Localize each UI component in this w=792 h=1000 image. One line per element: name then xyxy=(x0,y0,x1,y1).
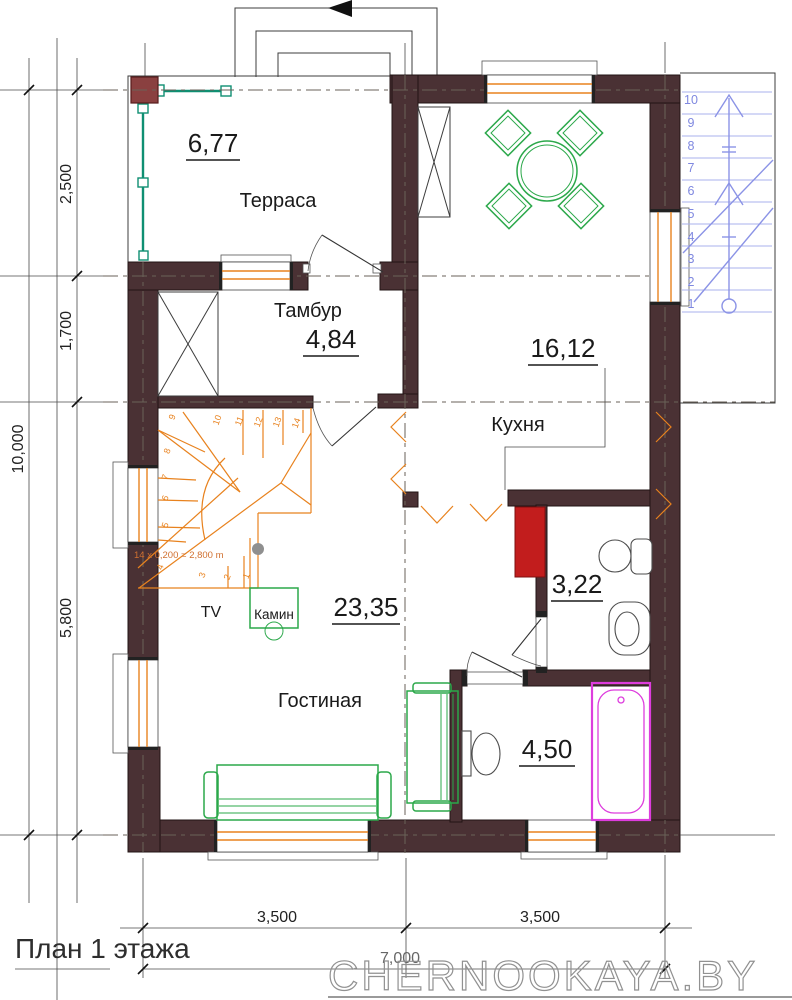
int-step-3: 3 xyxy=(197,571,208,579)
toilet xyxy=(599,539,652,574)
area-bath: 4,50 xyxy=(522,734,573,764)
dim-bottom-3500a: 3,500 xyxy=(257,909,297,926)
dim-left-1700: 1,700 xyxy=(58,311,75,351)
int-step-9: 9 xyxy=(167,413,178,421)
area-wc: 3,22 xyxy=(552,569,603,599)
dim-left-total: 10,000 xyxy=(10,424,27,473)
interior-stair: 14 х 0,200 = 2,800 m 1 2 3 4 5 6 7 8 9 1… xyxy=(134,408,311,588)
int-step-14: 14 xyxy=(290,417,303,430)
area-tambour: 4,84 xyxy=(306,324,357,354)
watermark-text: CHERNOOKAYA.BY xyxy=(328,952,758,999)
int-step-8: 8 xyxy=(162,447,173,455)
int-step-13: 13 xyxy=(271,416,284,429)
dim-left-5800: 5,800 xyxy=(58,598,75,638)
stair-formula: 14 х 0,200 = 2,800 m xyxy=(134,550,224,561)
watermark: CHERNOOKAYA.BY xyxy=(328,952,792,999)
int-step-10: 10 xyxy=(211,414,224,427)
ext-step-2: 2 xyxy=(688,275,695,289)
terrace-outline xyxy=(128,76,392,262)
closet-tambour xyxy=(158,292,218,396)
fireplace-label: Камин xyxy=(254,607,294,622)
bathtub xyxy=(592,683,650,820)
interior-walls xyxy=(158,396,650,822)
ext-step-4: 4 xyxy=(688,230,695,244)
exterior-walls xyxy=(128,75,680,852)
chimney-flue xyxy=(515,507,545,577)
int-step-2: 2 xyxy=(222,573,233,581)
area-living: 23,35 xyxy=(333,592,398,622)
dining-set xyxy=(485,110,603,228)
fridge-kitchen xyxy=(418,107,450,217)
page-title: План 1 этажа xyxy=(15,933,190,964)
ext-step-8: 8 xyxy=(688,139,695,153)
terrace-railing xyxy=(131,77,231,260)
int-step-7: 7 xyxy=(160,473,171,481)
dim-bottom-3500b: 3,500 xyxy=(520,909,560,926)
exterior-stair: 10 9 8 7 6 5 4 3 2 1 xyxy=(680,73,775,403)
bath-sink xyxy=(462,731,500,776)
int-step-5: 5 xyxy=(160,521,171,529)
ext-step-3: 3 xyxy=(688,252,695,266)
room-name-living: Гостиная xyxy=(278,690,362,712)
ext-step-5: 5 xyxy=(688,207,695,221)
tv-label: TV xyxy=(201,604,222,621)
stair-newel-post xyxy=(252,543,264,555)
ext-step-1: 1 xyxy=(688,297,695,311)
entrance-porch xyxy=(235,0,437,77)
dim-left-2500: 2,500 xyxy=(58,164,75,204)
ext-step-9: 9 xyxy=(688,116,695,130)
entrance-arrow-icon xyxy=(328,0,352,17)
room-name-tambour: Тамбур xyxy=(274,300,342,322)
room-name-kitchen: Кухня xyxy=(491,414,545,436)
int-step-6: 6 xyxy=(160,494,171,502)
ext-step-6: 6 xyxy=(688,184,695,198)
ext-step-10: 10 xyxy=(684,93,698,107)
ext-step-7: 7 xyxy=(688,161,695,175)
area-terrace: 6,77 xyxy=(188,128,239,158)
sofa-large xyxy=(204,765,391,820)
wc-sink xyxy=(609,602,650,655)
room-name-terrace: Терраса xyxy=(240,190,318,212)
area-kitchen: 16,12 xyxy=(530,333,595,363)
floor-plan-canvas: 14 х 0,200 = 2,800 m 1 2 3 4 5 6 7 8 9 1… xyxy=(0,0,792,1000)
floor-plan-page: 14 х 0,200 = 2,800 m 1 2 3 4 5 6 7 8 9 1… xyxy=(0,0,792,1000)
